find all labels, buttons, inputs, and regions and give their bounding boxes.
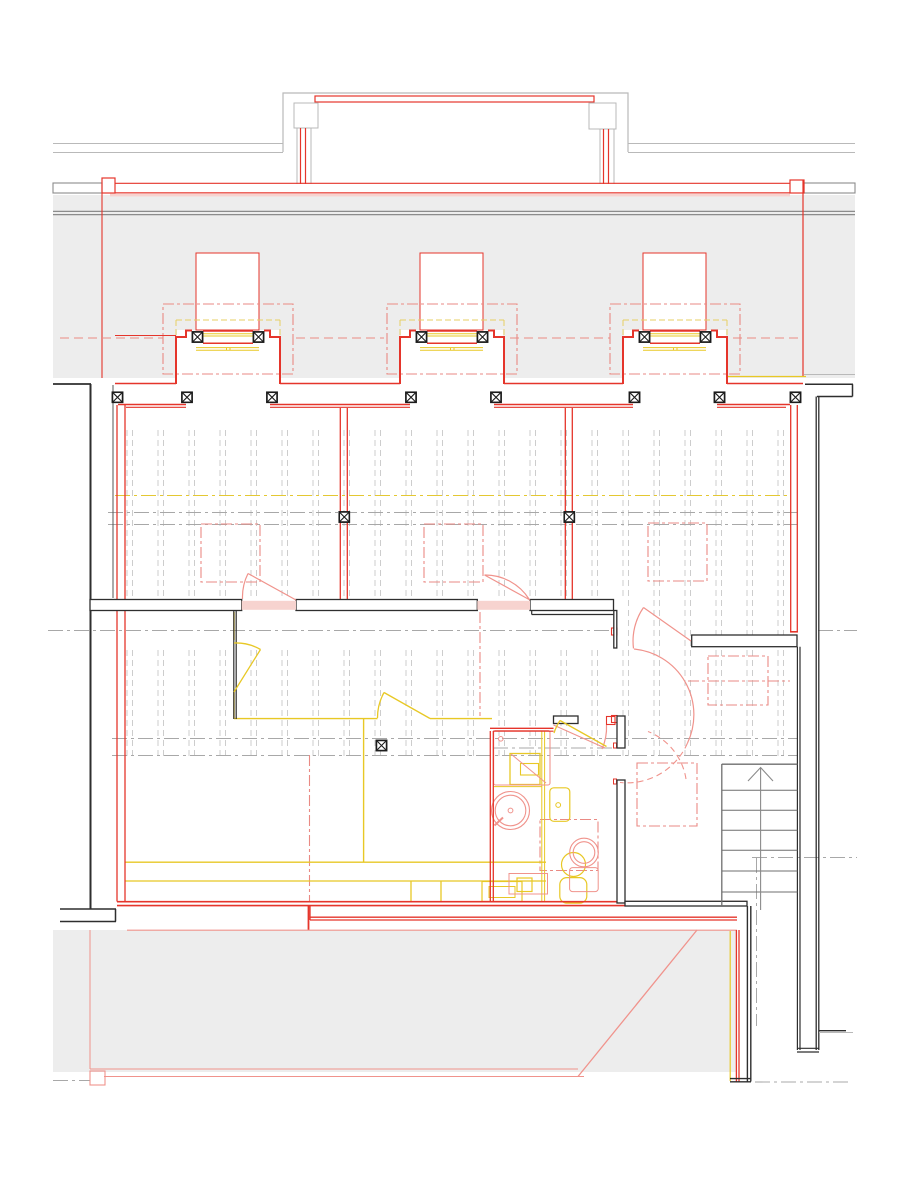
column-marker — [182, 392, 192, 402]
floor-plan-canvas — [0, 0, 907, 1177]
floor-joist-grid — [126, 426, 788, 756]
column-marker — [629, 392, 639, 402]
sink — [550, 788, 570, 822]
column-marker — [112, 392, 122, 402]
balcony-rail — [315, 96, 594, 102]
terrace — [53, 930, 739, 1085]
column-marker — [790, 392, 800, 402]
column-marker — [267, 392, 277, 402]
staircase — [722, 764, 798, 910]
new-kerb-line — [102, 178, 804, 196]
column-marker — [376, 740, 386, 750]
floor-plan-page — [0, 0, 907, 1177]
column-marker — [564, 512, 574, 522]
column-marker — [416, 332, 426, 342]
column-marker — [714, 392, 724, 402]
column-marker — [339, 512, 349, 522]
column-marker — [253, 332, 263, 342]
column-marker — [477, 332, 487, 342]
column-marker — [192, 332, 202, 342]
site-context-lines — [53, 144, 855, 194]
column-marker — [491, 392, 501, 402]
column-marker — [700, 332, 710, 342]
column-marker — [639, 332, 649, 342]
column-marker — [406, 392, 416, 402]
balcony-post-right — [589, 103, 616, 129]
balcony-outline — [283, 93, 628, 184]
balcony-post-left — [294, 103, 318, 128]
